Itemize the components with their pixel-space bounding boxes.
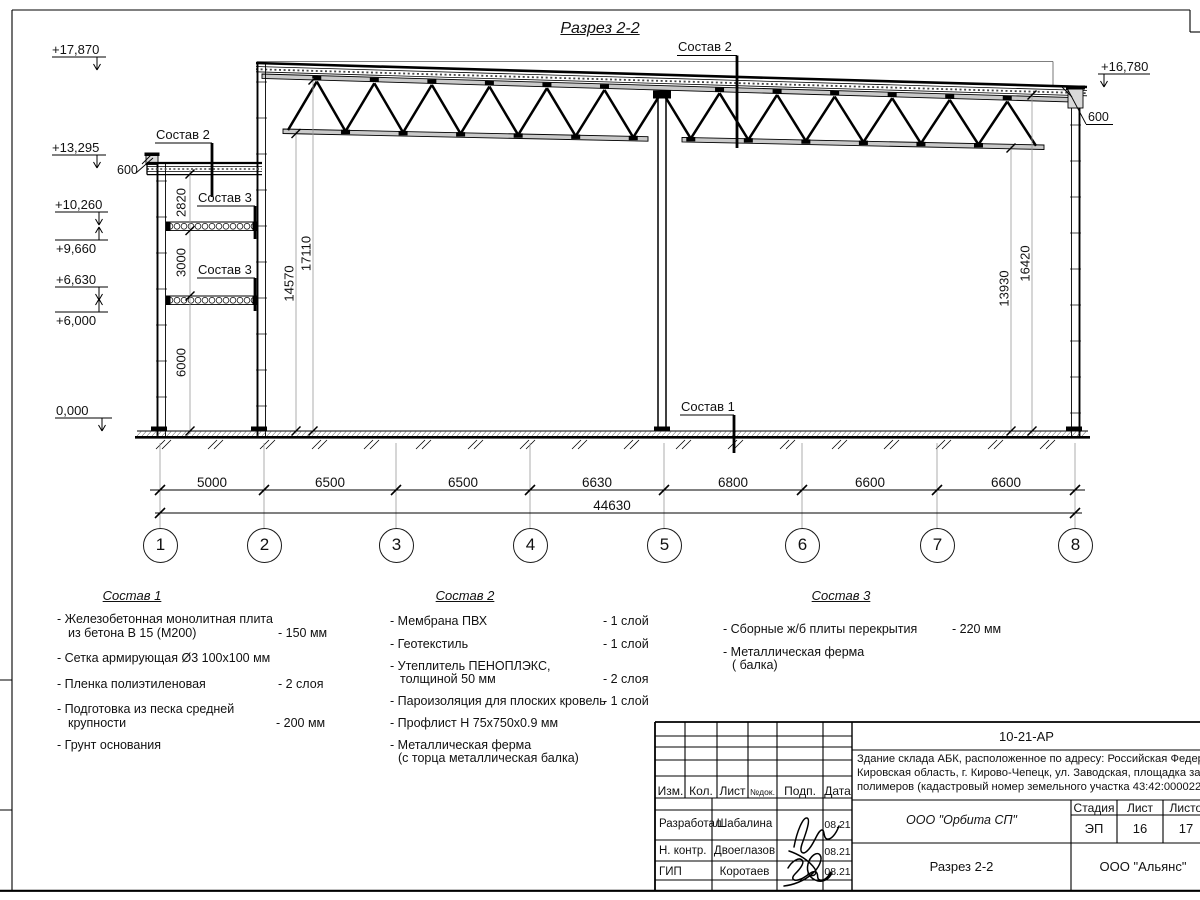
legend-3-item-1-value: - 220 мм [952, 622, 1001, 636]
legend-2-item-2: - Геотекстиль [390, 637, 468, 651]
titleblock-row2-role: Н. контр. [659, 845, 706, 857]
dim-span-4-5: 6630 [557, 475, 637, 490]
titleblock-col-list: Лист [717, 784, 748, 798]
drawing-title: Разрез 2-2 [545, 20, 655, 38]
legend-1-item-4-line2: крупности [68, 716, 126, 730]
dim-span-6-7: 6600 [830, 475, 910, 490]
dim-span-2-3: 6500 [290, 475, 370, 490]
dim-span-5-6: 6800 [693, 475, 773, 490]
legend-1-item-3-value: - 2 слоя [278, 677, 323, 691]
elevation-6000: +6,000 [56, 314, 96, 328]
elevation-9660: +9,660 [56, 242, 96, 256]
callout-sostav-2-annex: Состав 2 [156, 128, 210, 142]
elevation-annex-parapet: +13,295 [52, 141, 99, 155]
legend-3-title: Состав 3 [801, 588, 881, 603]
legend-1-item-1: - Железобетонная монолитная плита [57, 612, 273, 626]
elevation-10260: +10,260 [55, 198, 102, 212]
axis-bubble-5: 5 [647, 528, 682, 563]
titleblock-row3-date: 08.21 [823, 866, 852, 878]
legend-2-item-3-value: - 2 слоя [603, 672, 648, 686]
legend-3-item-2: - Металлическая ферма [723, 645, 864, 659]
legend-1-item-4-value: - 200 мм [276, 716, 325, 730]
elevation-top-right: +16,780 [1101, 60, 1148, 74]
titleblock-section-name: Разрез 2-2 [852, 859, 1071, 874]
titleblock-stage-value: ЭП [1071, 821, 1117, 836]
legend-1-item-2: - Сетка армирующая Ø3 100х100 мм [57, 651, 270, 665]
titleblock-row3-name: Коротаев [712, 866, 777, 878]
legend-1-item-4: - Подготовка из песка средней [57, 702, 234, 716]
legend-2-item-3: - Утеплитель ПЕНОПЛЭКС, [390, 659, 550, 673]
titleblock-object-line3: полимеров (кадастровый номер земельного … [857, 781, 1200, 793]
titleblock-object-line1: Здание склада АБК, расположенное по адре… [857, 753, 1200, 765]
dim-span-1-2: 5000 [172, 475, 252, 490]
titleblock-row1-name: Шабалина [712, 818, 777, 830]
titleblock-sheets-label: Листов [1163, 801, 1200, 815]
legend-2-item-4: - Пароизоляция для плоских кровель [390, 694, 606, 708]
legend-2-item-1-value: - 1 слой [603, 614, 649, 628]
dim-hall-right-total: 16420 [1018, 236, 1033, 292]
elevation-ground: 0,000 [56, 404, 89, 418]
titleblock-sheet-label: Лист [1117, 801, 1163, 815]
legend-2-title: Состав 2 [425, 588, 505, 603]
titleblock-document-code: 10-21-АР [852, 729, 1200, 744]
titleblock-contractor: ООО "Альянс" [1071, 859, 1200, 874]
titleblock-sheets-value: 17 [1163, 821, 1200, 836]
axis-bubble-3: 3 [379, 528, 414, 563]
dim-annex-6000: 6000 [174, 335, 189, 391]
dim-span-7-8: 6600 [966, 475, 1046, 490]
axis-bubble-8: 8 [1058, 528, 1093, 563]
elevation-6630: +6,630 [56, 273, 96, 287]
legend-3-item-1: - Сборные ж/б плиты перекрытия [723, 622, 917, 636]
axis-bubble-4: 4 [513, 528, 548, 563]
legend-2-item-5: - Профлист Н 75х750х0.9 мм [390, 716, 558, 730]
legend-1-item-1-line2: из бетона В 15 (М200) [68, 626, 196, 640]
titleblock-row2-name: Двоеглазов [712, 845, 777, 857]
legend-2-item-2-value: - 1 слой [603, 637, 649, 651]
legend-2-item-4-value: - 1 слой [603, 694, 649, 708]
dim-hall-right-clear: 13930 [997, 261, 1012, 317]
legend-2-item-6-line2: (с торца металлическая балка) [398, 751, 579, 765]
titleblock-col-podp: Подп. [777, 784, 823, 798]
titleblock-design-org: ООО "Орбита СП" [852, 813, 1071, 827]
titleblock-row3-role: ГИП [659, 866, 682, 878]
titleblock-stage-label: Стадия [1071, 801, 1117, 815]
dim-annex-3000: 3000 [174, 235, 189, 291]
titleblock-col-ndok: №док. [748, 787, 777, 797]
callout-sostav-2-roof: Состав 2 [678, 40, 732, 54]
titleblock-row2-date: 08.21 [823, 846, 852, 858]
callout-sostav-3-lower: Состав 3 [198, 263, 252, 277]
dim-parapet-right: 600 [1088, 111, 1109, 125]
titleblock-sheet-value: 16 [1117, 821, 1163, 836]
axis-bubble-7: 7 [920, 528, 955, 563]
titleblock-col-data: Дата [823, 784, 852, 798]
dim-total: 44630 [572, 498, 652, 513]
elevation-top-left: +17,870 [52, 43, 99, 57]
titleblock-object-line2: Кировская область, г. Кирово-Чепецк, ул.… [857, 767, 1200, 779]
axis-bubble-2: 2 [247, 528, 282, 563]
dim-hall-left-total: 17110 [299, 226, 314, 282]
callout-sostav-1-floor: Состав 1 [681, 400, 735, 414]
titleblock-row1-date: 08.21 [823, 819, 852, 831]
legend-2-item-1: - Мембрана ПВХ [390, 614, 487, 628]
blueprint-page: { "drawing": { "title": "Разрез 2-2", "c… [0, 0, 1200, 900]
legend-1-title: Состав 1 [92, 588, 172, 603]
axis-bubble-6: 6 [785, 528, 820, 563]
titleblock-col-izm: Изм. [656, 784, 685, 798]
dim-hall-left-clear: 14570 [282, 256, 297, 312]
titleblock-col-kol: Кол. [685, 784, 717, 798]
legend-2-item-6: - Металлическая ферма [390, 738, 531, 752]
dim-annex-2820: 2820 [174, 175, 189, 231]
legend-3-item-2-line2: ( балка) [732, 658, 778, 672]
legend-1-item-1-value: - 150 мм [278, 626, 327, 640]
legend-2-item-3-line2: толщиной 50 мм [400, 672, 496, 686]
legend-1-item-5: - Грунт основания [57, 738, 161, 752]
legend-1-item-3: - Пленка полиэтиленовая [57, 677, 206, 691]
axis-bubble-1: 1 [143, 528, 178, 563]
dim-span-3-4: 6500 [423, 475, 503, 490]
callout-sostav-3-upper: Состав 3 [198, 191, 252, 205]
dim-parapet-left: 600 [117, 164, 138, 178]
